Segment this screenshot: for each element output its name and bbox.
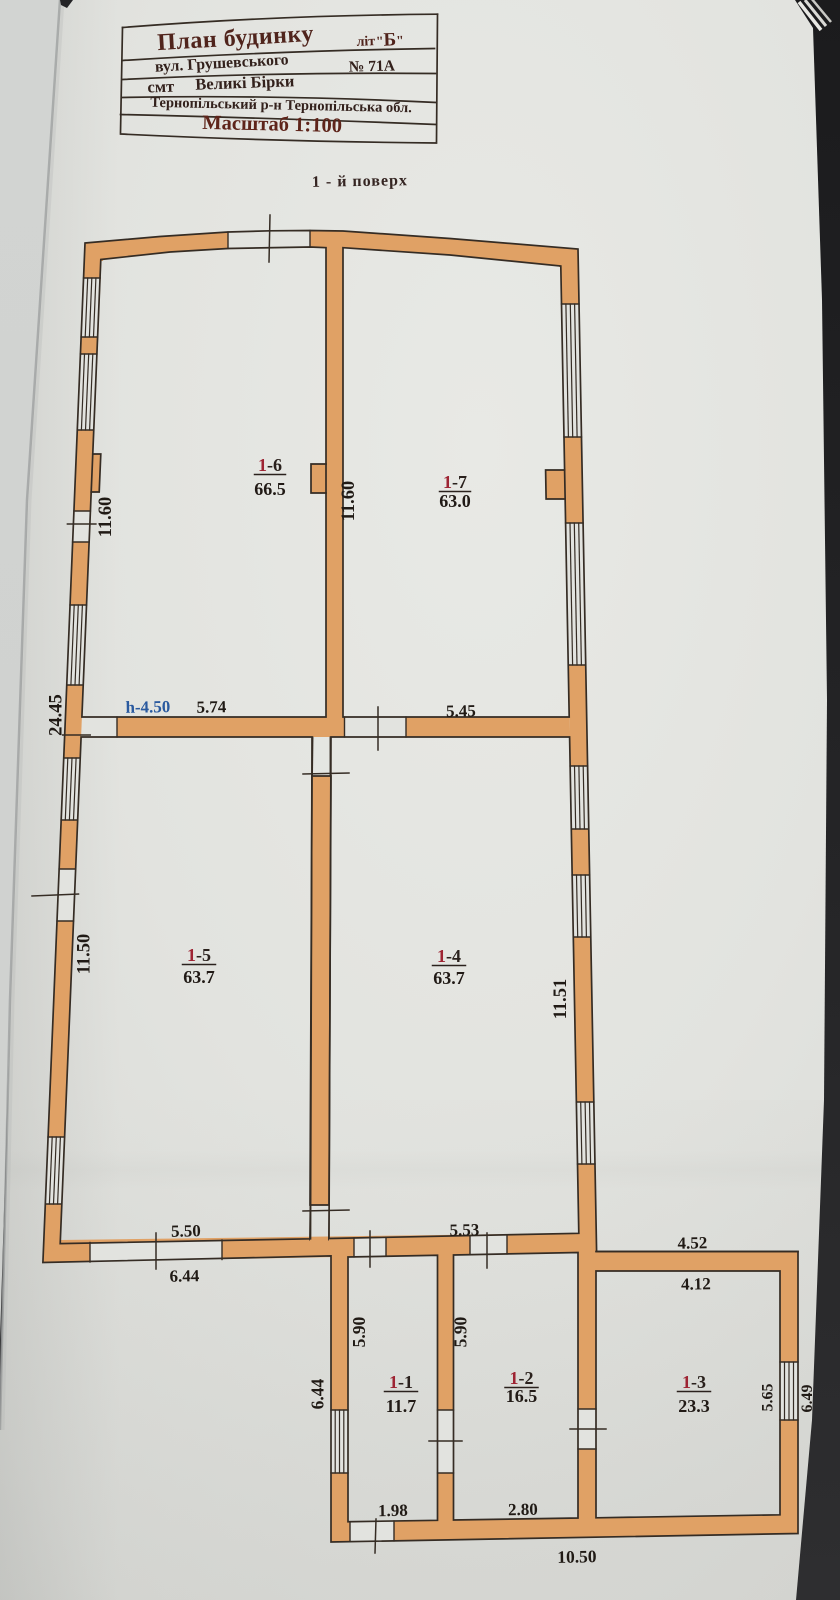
svg-text:11.50: 11.50	[75, 934, 95, 975]
svg-text:літ: літ	[356, 34, 375, 50]
svg-text:1.98: 1.98	[378, 1501, 408, 1521]
svg-text:63.7: 63.7	[183, 967, 215, 987]
svg-text:6.49: 6.49	[799, 1385, 816, 1413]
svg-text:h-4.50: h-4.50	[125, 697, 170, 717]
svg-text:Великі Бірки: Великі Бірки	[195, 71, 295, 93]
svg-text:10.50: 10.50	[557, 1546, 597, 1567]
svg-text:11.51: 11.51	[551, 979, 571, 1020]
svg-text:5.74: 5.74	[196, 697, 227, 717]
svg-text:5.65: 5.65	[760, 1384, 777, 1412]
svg-text:5.53: 5.53	[449, 1220, 479, 1240]
svg-text:24.45: 24.45	[47, 694, 67, 736]
svg-text:1-2: 1-2	[510, 1368, 534, 1388]
svg-text:1 - й поверх: 1 - й поверх	[312, 172, 408, 191]
svg-text:11.60: 11.60	[339, 481, 359, 522]
svg-text:1-7: 1-7	[443, 472, 467, 492]
svg-text:11.60: 11.60	[96, 497, 116, 538]
svg-text:11.7: 11.7	[386, 1396, 417, 1416]
svg-text:6.44: 6.44	[308, 1378, 328, 1409]
svg-text:4.12: 4.12	[681, 1274, 711, 1294]
svg-text:2.80: 2.80	[508, 1500, 538, 1520]
svg-text:63.0: 63.0	[439, 491, 471, 511]
svg-text:5.90: 5.90	[451, 1316, 471, 1347]
svg-text:1-3: 1-3	[682, 1372, 706, 1392]
svg-text:4.52: 4.52	[677, 1233, 707, 1253]
svg-text:5.90: 5.90	[349, 1316, 369, 1347]
svg-text:63.7: 63.7	[433, 968, 465, 988]
svg-text:66.5: 66.5	[254, 479, 286, 499]
svg-text:1-4: 1-4	[437, 946, 461, 966]
svg-text:смт: смт	[147, 77, 174, 97]
svg-text:16.5: 16.5	[506, 1386, 538, 1406]
svg-text:6.44: 6.44	[169, 1266, 200, 1286]
svg-text:№ 71А: № 71А	[349, 57, 396, 75]
svg-text:1-5: 1-5	[187, 945, 211, 965]
svg-text:1-1: 1-1	[389, 1372, 413, 1392]
svg-text:23.3: 23.3	[678, 1396, 710, 1416]
svg-text:1-6: 1-6	[258, 455, 282, 475]
svg-text:5.50: 5.50	[171, 1221, 201, 1241]
svg-text:Масштаб 1:100: Масштаб 1:100	[202, 112, 342, 137]
svg-text:5.45: 5.45	[446, 701, 476, 721]
